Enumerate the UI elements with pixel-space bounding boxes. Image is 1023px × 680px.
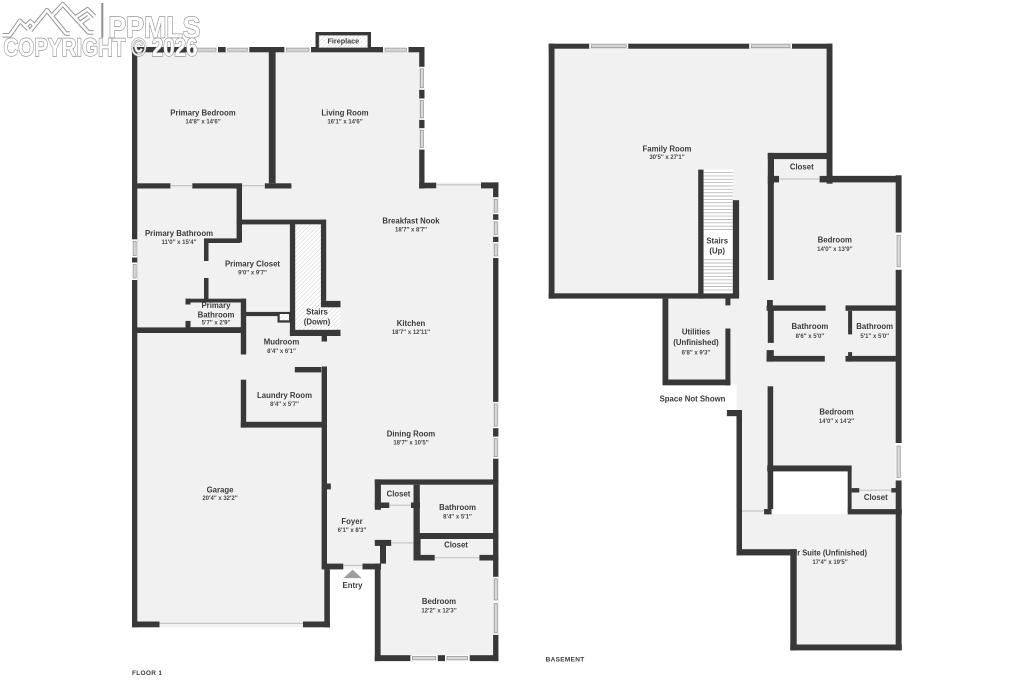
svg-text:18′7″ x 12′11″: 18′7″ x 12′11″ <box>392 330 430 336</box>
svg-text:5′7″ x 2′9″: 5′7″ x 2′9″ <box>202 320 231 326</box>
svg-text:(Unfinished): (Unfinished) <box>673 338 719 347</box>
svg-text:12′2″ x 12′3″: 12′2″ x 12′3″ <box>421 609 456 615</box>
svg-text:30′5″ x 27′1″: 30′5″ x 27′1″ <box>649 155 684 161</box>
svg-text:6′8″ x 9′3″: 6′8″ x 9′3″ <box>682 350 711 356</box>
svg-text:Kitchen: Kitchen <box>397 319 426 328</box>
svg-text:(Down): (Down) <box>304 317 331 326</box>
svg-text:Bathroom: Bathroom <box>856 322 893 331</box>
svg-text:8′4″ x 6′1″: 8′4″ x 6′1″ <box>267 349 296 355</box>
svg-text:Foyer: Foyer <box>341 517 362 526</box>
svg-text:14′0″ x 13′9″: 14′0″ x 13′9″ <box>817 247 852 253</box>
svg-text:Mudroom: Mudroom <box>264 338 300 347</box>
svg-text:Breakfast Nook: Breakfast Nook <box>382 217 440 226</box>
svg-text:COPYRIGHT © 2026: COPYRIGHT © 2026 <box>4 34 198 62</box>
svg-text:14′0″ x 14′2″: 14′0″ x 14′2″ <box>819 419 854 425</box>
svg-text:Closet: Closet <box>790 163 814 172</box>
svg-text:Stairs: Stairs <box>306 308 328 317</box>
svg-text:5′1″ x 5′0″: 5′1″ x 5′0″ <box>860 334 889 340</box>
svg-text:Dining Room: Dining Room <box>387 429 436 438</box>
svg-text:Garage: Garage <box>207 485 235 494</box>
svg-text:6′1″ x 8′3″: 6′1″ x 8′3″ <box>338 528 367 534</box>
svg-text:Bedroom: Bedroom <box>818 235 852 244</box>
svg-text:Entry: Entry <box>343 581 364 590</box>
svg-text:16′1″ x 14′6″: 16′1″ x 14′6″ <box>327 119 362 125</box>
svg-text:Closet: Closet <box>387 490 411 499</box>
svg-text:Closet: Closet <box>444 541 468 550</box>
svg-text:14′8″ x 14′6″: 14′8″ x 14′6″ <box>185 119 220 125</box>
svg-text:Primary Bathroom: Primary Bathroom <box>145 229 213 238</box>
svg-text:Living Room: Living Room <box>321 108 368 117</box>
svg-text:Stairs: Stairs <box>706 236 728 245</box>
svg-text:Fireplace: Fireplace <box>328 36 360 45</box>
svg-text:9′0″ x 9′7″: 9′0″ x 9′7″ <box>238 270 267 276</box>
svg-text:Primary: Primary <box>201 301 231 310</box>
svg-text:Space Not Shown: Space Not Shown <box>660 394 726 403</box>
svg-text:FLOOR 1: FLOOR 1 <box>132 670 162 677</box>
svg-text:Primary Closet: Primary Closet <box>225 259 280 268</box>
svg-text:8′6″ x 5′0″: 8′6″ x 5′0″ <box>796 334 825 340</box>
svg-text:Bathroom: Bathroom <box>198 310 235 319</box>
svg-text:Primary Bedroom: Primary Bedroom <box>170 108 235 117</box>
svg-text:Family Room: Family Room <box>643 144 692 153</box>
svg-text:17′4″ x 19′5″: 17′4″ x 19′5″ <box>812 560 847 566</box>
svg-text:Utilities: Utilities <box>682 327 711 336</box>
svg-text:BASEMENT: BASEMENT <box>546 657 585 664</box>
svg-text:18′7″ x 10′5″: 18′7″ x 10′5″ <box>393 440 428 446</box>
svg-text:8′4″ x 5′1″: 8′4″ x 5′1″ <box>443 515 472 521</box>
svg-text:(Up): (Up) <box>709 246 725 255</box>
svg-text:Laundry Room: Laundry Room <box>257 391 312 400</box>
svg-text:Bathroom: Bathroom <box>791 322 828 331</box>
svg-text:8′4″ x 5′7″: 8′4″ x 5′7″ <box>270 402 299 408</box>
svg-text:11′0″ x 15′4″: 11′0″ x 15′4″ <box>162 240 197 246</box>
svg-text:Closet: Closet <box>864 493 888 502</box>
svg-text:Jr Suite (Unfinished): Jr Suite (Unfinished) <box>793 549 867 558</box>
svg-text:Bathroom: Bathroom <box>439 503 476 512</box>
svg-text:Bedroom: Bedroom <box>422 597 456 606</box>
svg-text:Bedroom: Bedroom <box>819 408 853 417</box>
svg-text:20′4″ x 32′2″: 20′4″ x 32′2″ <box>202 496 237 502</box>
svg-text:18′7″ x 8′7″: 18′7″ x 8′7″ <box>395 228 427 234</box>
